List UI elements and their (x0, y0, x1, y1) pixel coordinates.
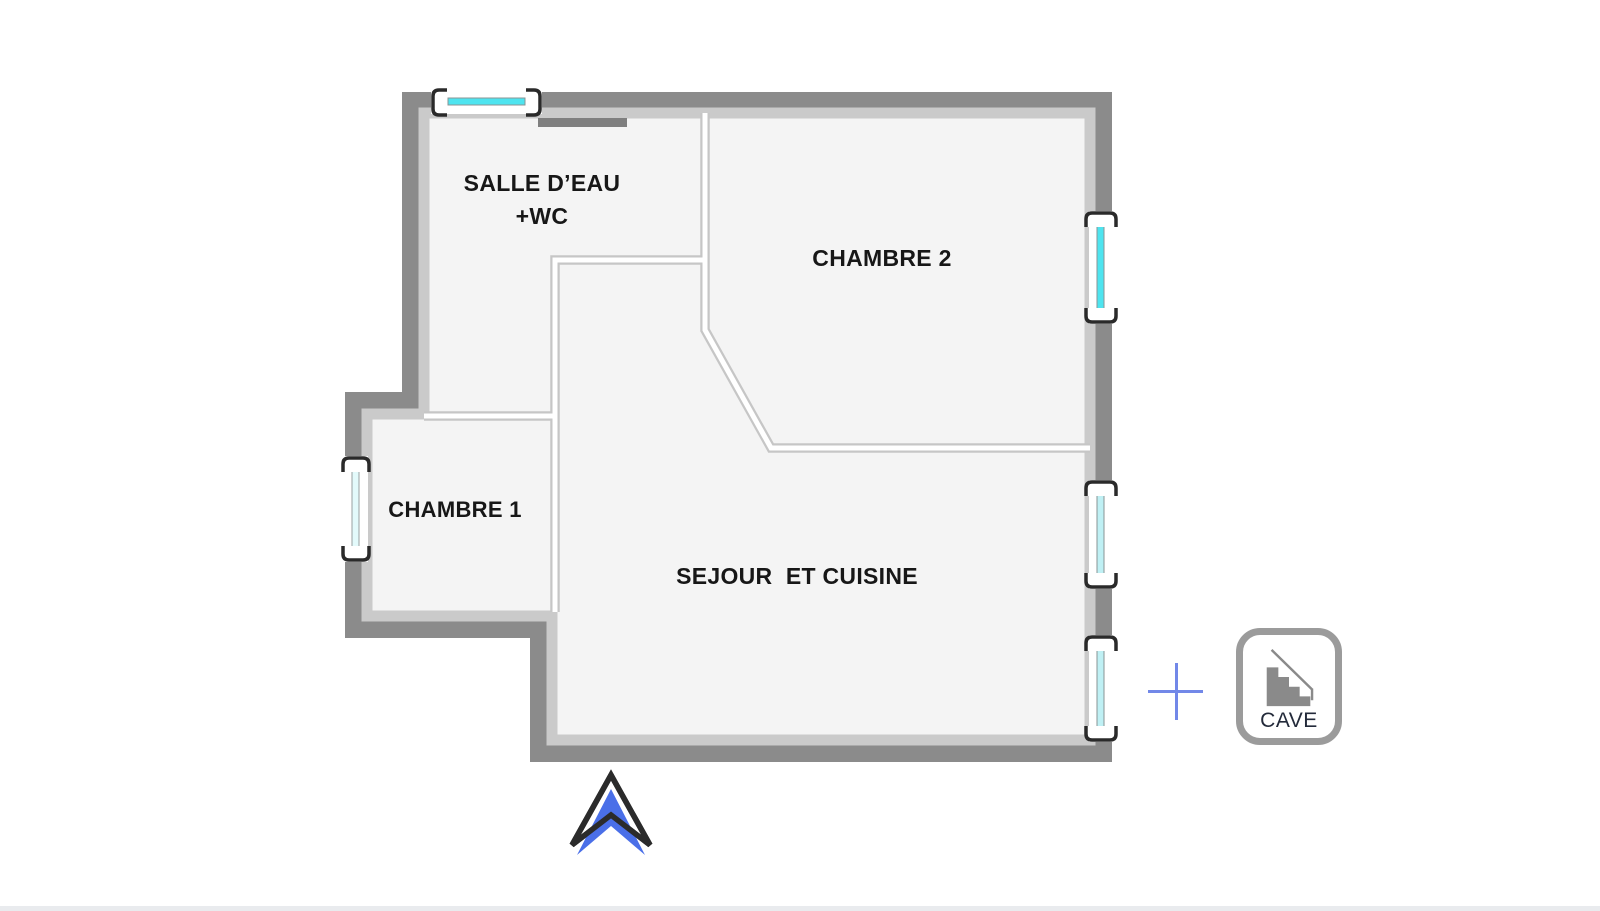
floorplan-svg (0, 0, 1600, 911)
window-glass (1097, 226, 1104, 310)
bottom-edge-bar (0, 906, 1600, 911)
window-bracket (343, 546, 369, 560)
entry-door-marker (538, 118, 627, 127)
window-sejour-upper (1086, 480, 1116, 589)
window-glass (448, 98, 525, 105)
cave-button[interactable]: CAVE (1236, 628, 1342, 745)
window-bracket (526, 90, 540, 115)
window-bracket (343, 458, 369, 472)
window-glass (352, 471, 359, 547)
window-sejour-lower (1086, 635, 1116, 742)
floor (367, 113, 1090, 740)
floorplan-canvas: SALLE D’EAU +WC CHAMBRE 2 CHAMBRE 1 SEJO… (0, 0, 1600, 911)
window-bracket (1086, 726, 1116, 740)
window-glass (1097, 495, 1104, 574)
cave-label: CAVE (1260, 710, 1318, 732)
window-bracket (1086, 637, 1116, 651)
window-bracket (1086, 482, 1116, 496)
window-bracket (1086, 573, 1116, 587)
window-chambre2 (1086, 211, 1116, 324)
window-chambre1 (343, 456, 369, 562)
stairs-icon (1262, 646, 1316, 708)
window-bracket (433, 90, 447, 115)
window-bracket (1086, 213, 1116, 227)
north-arrow-icon (572, 775, 650, 855)
window-bracket (1086, 308, 1116, 322)
crosshair-icon (1148, 663, 1203, 720)
window-glass (1097, 650, 1104, 727)
window-salle-eau (431, 90, 542, 115)
